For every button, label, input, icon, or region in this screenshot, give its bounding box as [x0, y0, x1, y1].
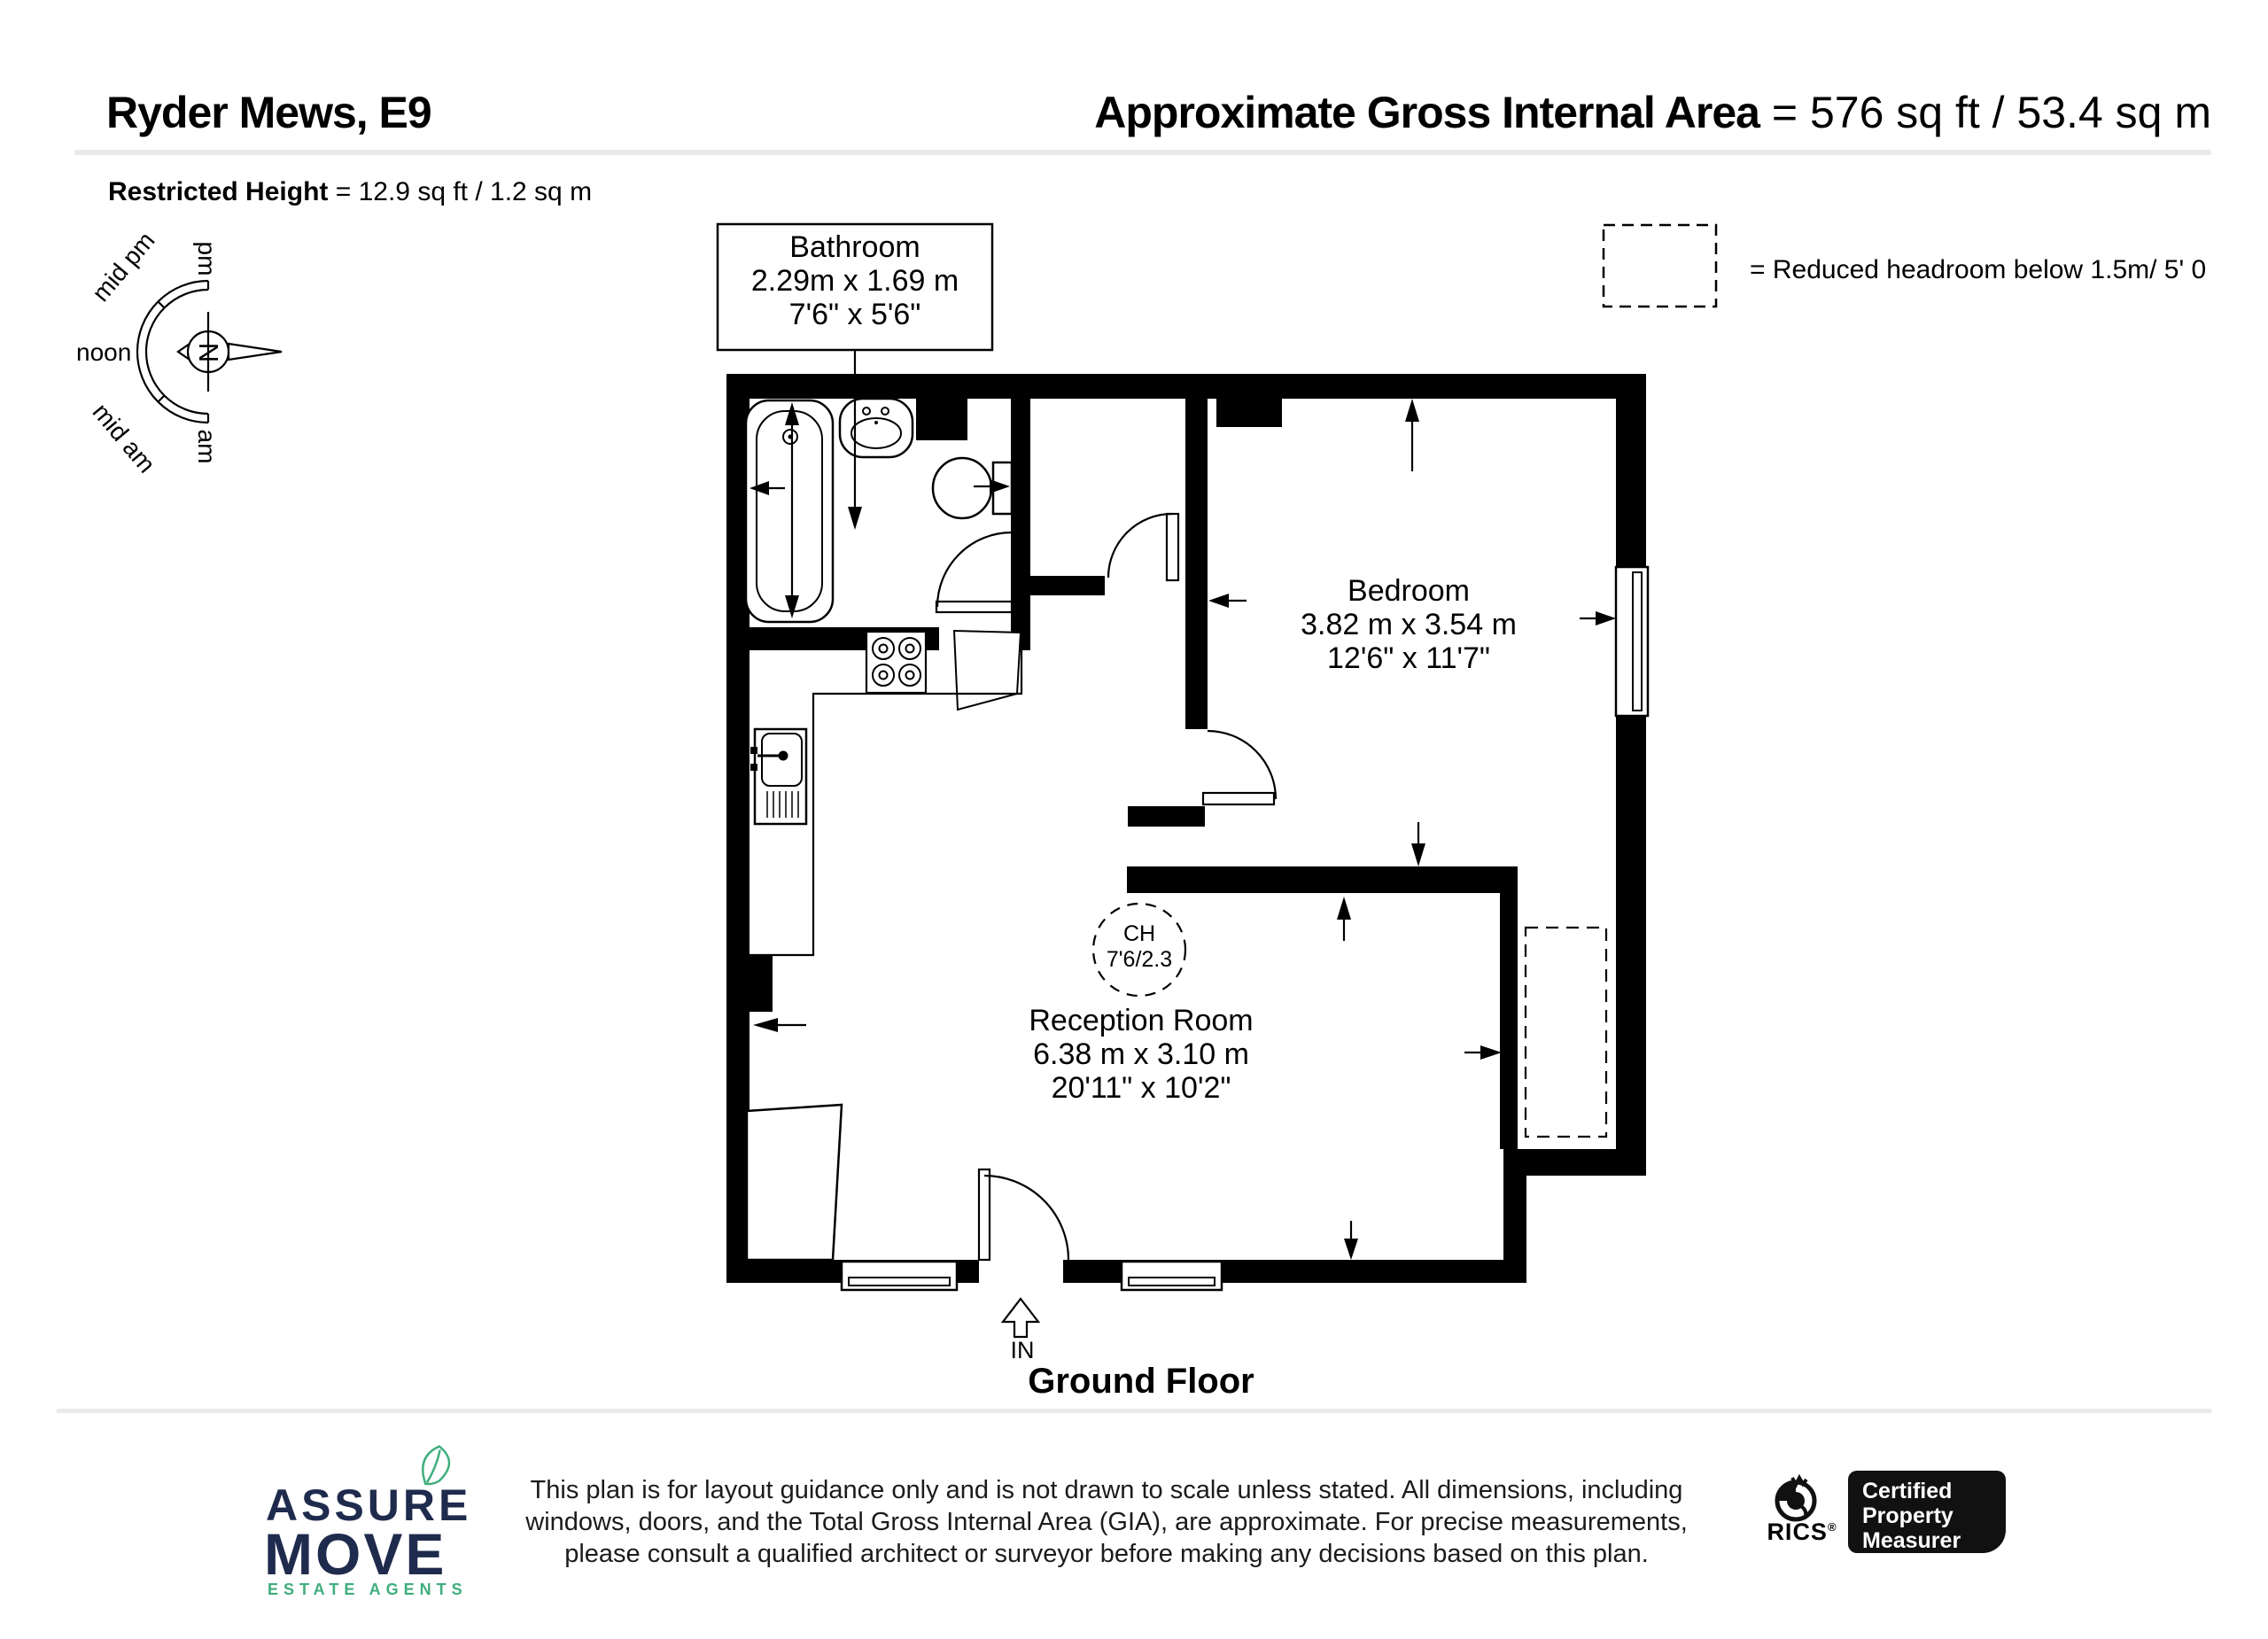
door-bedroom	[1203, 731, 1276, 804]
ceiling-height-abbr: CH	[1086, 921, 1192, 947]
agency-logo-tagline: ESTATE AGENTS	[268, 1581, 468, 1599]
compass-label-am: am	[192, 428, 221, 465]
rics-wordmark: RICS®	[1761, 1519, 1843, 1546]
cert-line3: Measurer	[1862, 1528, 2006, 1553]
disclaimer-line1: This plan is for layout guidance only an…	[494, 1474, 1719, 1506]
room-name: Bathroom	[719, 230, 990, 264]
window-icon-bedroom	[1616, 567, 1648, 716]
room-label-reception: Reception Room 6.38 m x 3.10 m 20'11" x …	[955, 1004, 1327, 1105]
disclaimer-text: This plan is for layout guidance only an…	[494, 1474, 1719, 1570]
wardrobe-outline	[747, 1105, 842, 1260]
footer-separator	[57, 1409, 2211, 1413]
room-dim-metric: 2.29m x 1.69 m	[719, 264, 990, 298]
room-name: Reception Room	[955, 1004, 1327, 1037]
room-dim-metric: 6.38 m x 3.10 m	[955, 1037, 1327, 1071]
door-bathroom	[936, 532, 1012, 612]
certified-property-measurer-badge: Certified Property Measurer	[1848, 1471, 2006, 1553]
ceiling-height-label: CH 7'6/2.3	[1086, 921, 1192, 973]
gia-label: Approximate Gross Internal Area	[1094, 88, 1759, 137]
room-dim-imperial: 20'11" x 10'2"	[955, 1071, 1327, 1105]
registered-mark: ®	[1828, 1520, 1837, 1534]
compass-label-pm: pm	[192, 240, 221, 277]
door-kitchen-ajar	[954, 631, 1021, 710]
reduced-headroom-zone	[1526, 928, 1606, 1137]
bathroom-fixtures	[746, 399, 1012, 622]
page-title: Ryder Mews, E9	[106, 87, 431, 138]
room-dim-imperial: 7'6" x 5'6"	[719, 298, 990, 331]
compass-label-noon: noon	[76, 338, 131, 367]
room-name: Bedroom	[1223, 574, 1595, 608]
floor-title: Ground Floor	[955, 1362, 1327, 1402]
header-separator	[74, 150, 2211, 155]
room-dim-imperial: 12'6" x 11'7"	[1223, 641, 1595, 675]
ceiling-height-value: 7'6/2.3	[1086, 947, 1192, 973]
compass-north-letter: N	[192, 337, 224, 369]
gia-value: = 576 sq ft / 53.4 sq m	[1772, 88, 2211, 137]
agency-logo-line2: MOVE	[264, 1520, 447, 1588]
room-label-bathroom: Bathroom 2.29m x 1.69 m 7'6" x 5'6"	[719, 230, 990, 331]
entrance-in-label: IN	[999, 1337, 1045, 1364]
kitchen-sink-icon	[750, 729, 806, 824]
rics-lion-icon	[1777, 1478, 1814, 1519]
hob-icon	[866, 632, 926, 693]
entrance-in-arrow-icon	[1003, 1299, 1038, 1337]
window-icon-reception-right	[1122, 1262, 1222, 1290]
disclaimer-line3: please consult a qualified architect or …	[494, 1538, 1719, 1570]
dimension-arrows	[750, 399, 1616, 1260]
room-dim-metric: 3.82 m x 3.54 m	[1223, 608, 1595, 641]
walls	[726, 374, 1646, 1283]
room-label-bedroom: Bedroom 3.82 m x 3.54 m 12'6" x 11'7"	[1223, 574, 1595, 675]
restricted-height-label: Restricted Height	[108, 177, 328, 206]
gross-internal-area: Approximate Gross Internal Area = 576 sq…	[1094, 87, 2211, 138]
bathtub-icon	[746, 400, 833, 622]
door-entrance	[979, 1169, 1068, 1260]
window-icon-reception-left	[842, 1262, 957, 1290]
legend-reduced-headroom-box	[1604, 225, 1716, 307]
basin-icon	[840, 399, 913, 457]
restricted-height: Restricted Height = 12.9 sq ft / 1.2 sq …	[108, 177, 592, 207]
floorplan-page: { "header": { "title": "Ryder Mews, E9",…	[0, 0, 2268, 1639]
legend-reduced-headroom-text: = Reduced headroom below 1.5m/ 5' 0	[1750, 255, 2206, 285]
cert-line1: Certified	[1862, 1479, 2006, 1503]
door-lobby	[1108, 514, 1178, 580]
restricted-height-value: = 12.9 sq ft / 1.2 sq m	[336, 177, 592, 206]
cert-line2: Property	[1862, 1503, 2006, 1528]
disclaimer-line2: windows, doors, and the Total Gross Inte…	[494, 1506, 1719, 1538]
